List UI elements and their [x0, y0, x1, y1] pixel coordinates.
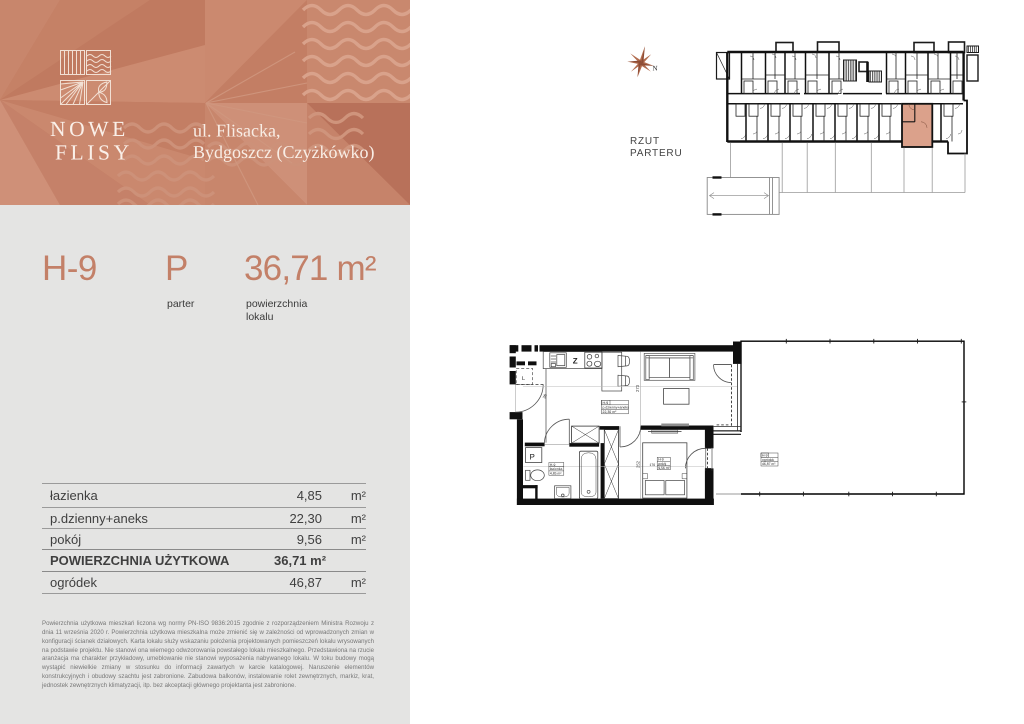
- svg-text:NOWE: NOWE: [50, 117, 129, 141]
- svg-text:46,87 m²: 46,87 m²: [762, 462, 776, 466]
- svg-text:Z: Z: [573, 357, 578, 366]
- svg-text:FLISY: FLISY: [55, 141, 133, 165]
- svg-text:RZUT: RZUT: [630, 136, 660, 147]
- svg-text:H-9: H-9: [603, 401, 609, 405]
- svg-text:H-9: H-9: [762, 453, 768, 457]
- svg-text:ogródek: ogródek: [762, 458, 775, 462]
- svg-text:L: L: [522, 376, 525, 382]
- svg-text:9,56 m²: 9,56 m²: [658, 466, 670, 470]
- svg-text:p.dzienny+aneks: p.dzienny+aneks: [603, 405, 630, 409]
- svg-text:4,85 m²: 4,85 m²: [550, 471, 562, 475]
- svg-text:22,30 m²: 22,30 m²: [603, 410, 618, 414]
- svg-text:N: N: [653, 65, 658, 73]
- svg-text:252: 252: [635, 460, 640, 468]
- svg-text:P: P: [530, 453, 535, 462]
- svg-text:Bydgoszcz (Czyżkówko): Bydgoszcz (Czyżkówko): [193, 142, 374, 162]
- svg-text:273: 273: [635, 384, 640, 392]
- svg-text:36: 36: [542, 393, 549, 400]
- svg-text:PARTERU: PARTERU: [630, 148, 682, 159]
- svg-text:170: 170: [650, 463, 656, 467]
- svg-text:ul. Flisacka,: ul. Flisacka,: [193, 121, 281, 141]
